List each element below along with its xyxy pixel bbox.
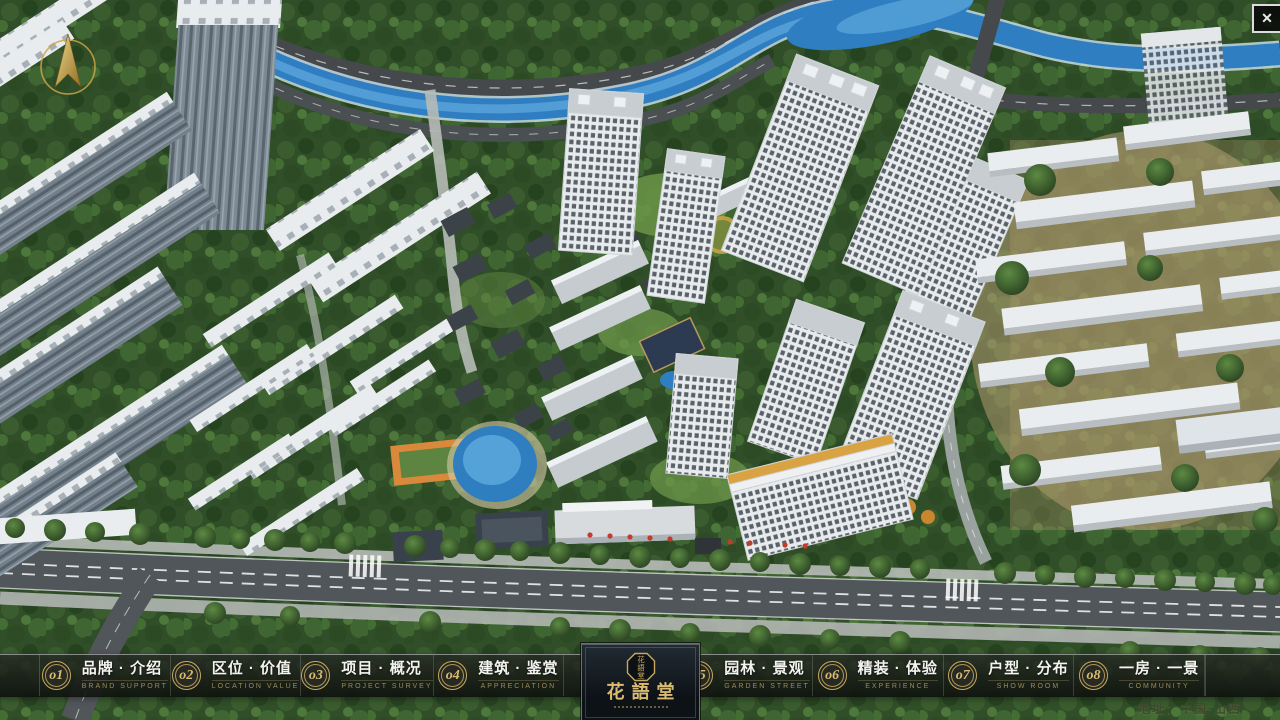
project-address: 地址：中国·山西 <box>1138 700 1242 717</box>
nav-item-room-view[interactable]: o8 一房 · 一景 COMMUNITY <box>1074 655 1205 696</box>
nav-item-floorplans[interactable]: o7 户型 · 分布 SHOW ROOM <box>944 655 1075 696</box>
nav-label-zh: 一房 · 一景 <box>1119 661 1199 678</box>
brand-plaque-home-button[interactable]: 花 語 堂 花語堂 <box>581 643 700 720</box>
nav-label-en: SHOW ROOM <box>988 680 1068 690</box>
nav-number-badge: o8 <box>1079 661 1108 690</box>
nav-number-badge: o1 <box>42 661 71 690</box>
nav-number-badge: o2 <box>172 661 201 690</box>
nav-item-experience[interactable]: o6 精装 · 体验 EXPERIENCE <box>813 655 944 696</box>
close-button[interactable]: ✕ <box>1252 4 1280 33</box>
nav-item-project-survey[interactable]: o3 项目 · 概况 PROJECT SURVEY <box>301 655 433 696</box>
nav-label-zh: 项目 · 概况 <box>341 661 421 678</box>
navbar-spacer <box>0 655 40 696</box>
nav-item-brand-intro[interactable]: o1 品牌 · 介绍 BRAND SUPPORT <box>40 655 171 696</box>
nav-label-zh: 建筑 · 鉴赏 <box>478 661 558 678</box>
nav-label-en: PROJECT SURVEY <box>341 680 432 690</box>
nav-label-zh: 园林 · 景观 <box>724 661 804 678</box>
nav-label-zh: 精装 · 体验 <box>858 661 938 678</box>
nav-number-badge: o4 <box>438 661 467 690</box>
nav-item-location-value[interactable]: o2 区位 · 价值 LOCATION VALUE <box>171 655 302 696</box>
nav-item-garden-landscape[interactable]: o5 园林 · 景观 GARDEN STREET <box>682 655 813 696</box>
brand-seal-icon: 花 語 堂 <box>626 652 656 682</box>
nav-label-zh: 品牌 · 介绍 <box>82 661 162 678</box>
nav-label-en: GARDEN STREET <box>724 680 810 690</box>
nav-label-zh: 区位 · 价值 <box>212 661 292 678</box>
nav-number-badge: o7 <box>948 661 977 690</box>
nav-label-en: EXPERIENCE <box>858 680 938 690</box>
brand-subtitle-rule <box>614 706 668 708</box>
nav-label-en: BRAND SUPPORT <box>82 680 168 690</box>
nav-label-en: COMMUNITY <box>1119 680 1199 690</box>
nav-label-zh: 户型 · 分布 <box>988 661 1068 678</box>
nav-number-badge: o6 <box>818 661 847 690</box>
nav-label-en: APPRECIATION <box>478 680 558 690</box>
navbar-spacer <box>1205 655 1280 696</box>
svg-text:堂: 堂 <box>637 670 645 680</box>
presentation-window: ✕ o1 品牌 · 介绍 BRAND SUPPORT o2 区位 · 价值 LO… <box>0 0 1280 720</box>
nav-label-en: LOCATION VALUE <box>212 680 300 690</box>
brand-title: 花語堂 <box>600 683 682 703</box>
nav-number-badge: o3 <box>301 661 330 690</box>
masterplan-3d-view[interactable] <box>0 0 1280 720</box>
nav-item-architecture[interactable]: o4 建筑 · 鉴赏 APPRECIATION <box>434 655 565 696</box>
close-icon: ✕ <box>1261 10 1273 27</box>
